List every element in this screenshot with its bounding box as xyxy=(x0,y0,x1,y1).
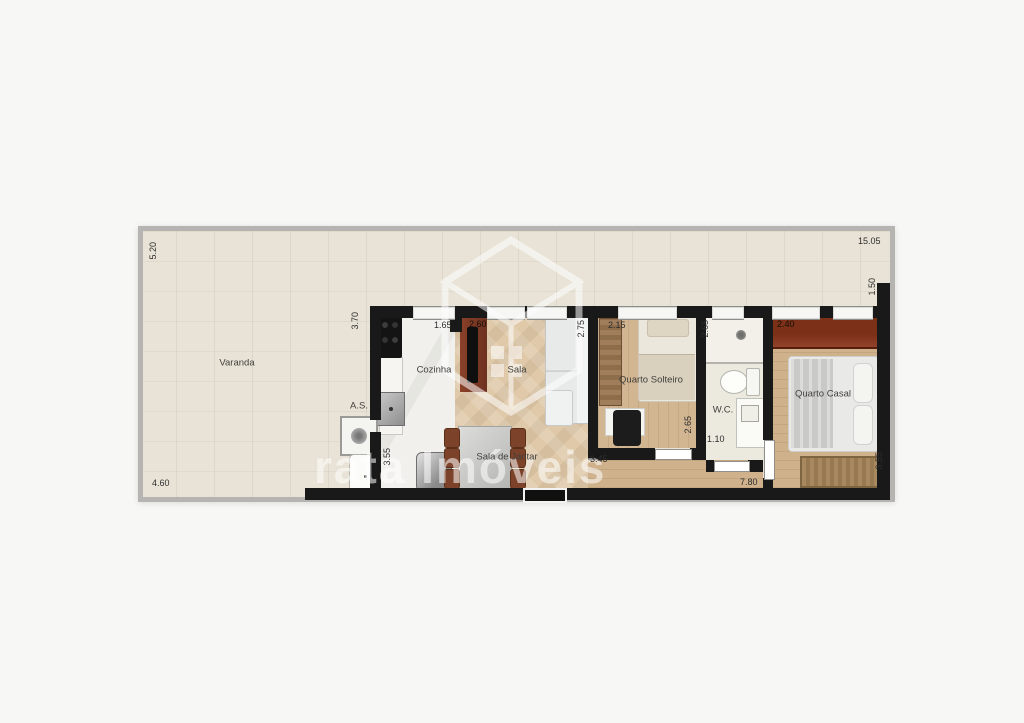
floor-plan-page: Varanda Cozinha A.S. Sala Sala de Jantar… xyxy=(0,0,1024,723)
single-bed xyxy=(638,315,698,402)
shower-head xyxy=(736,330,746,340)
bathroom-window xyxy=(712,306,744,320)
living-window-right xyxy=(527,306,567,320)
wall-bottom-interior xyxy=(305,488,890,500)
wall-couple-bedroom-left-lower xyxy=(763,478,773,500)
kitchen-window xyxy=(413,306,455,320)
wall-kitchen-left-upper xyxy=(370,306,381,420)
single-bed-pillow xyxy=(647,319,689,337)
room-label-sala-jantar: Sala de Jantar xyxy=(476,452,537,463)
dining-chair xyxy=(444,448,460,468)
room-label-sala: Sala xyxy=(507,365,526,376)
dim-wc-height: 2.65 xyxy=(700,320,710,338)
toilet xyxy=(720,370,748,394)
floor-plan: Varanda Cozinha A.S. Sala Sala de Jantar… xyxy=(138,226,895,502)
wall-kitchen-left-lower xyxy=(370,432,381,500)
dining-chair xyxy=(510,428,526,448)
room-label-varanda: Varanda xyxy=(219,358,254,369)
wall-bathroom-bottom-a xyxy=(706,460,714,472)
dim-left-section-height: 3.70 xyxy=(350,312,360,330)
dim-hall-span: 7.80 xyxy=(740,477,758,487)
couple-bedroom-door xyxy=(764,440,775,480)
dim-varanda-width: 4.60 xyxy=(152,478,170,488)
dim-varanda-height: 5.20 xyxy=(148,242,158,260)
bathroom-door xyxy=(714,461,750,472)
shower-area xyxy=(706,318,763,364)
dim-quarto-casal-height: 3.55 xyxy=(874,452,884,470)
sofa-chaise xyxy=(545,390,573,426)
room-label-quarto-casal: Quarto Casal xyxy=(795,389,851,400)
room-label-quarto-solteiro: Quarto Solteiro xyxy=(619,375,683,386)
room-label-area-servico: A.S. xyxy=(350,401,368,412)
desk-chair xyxy=(613,410,641,446)
rug xyxy=(800,456,881,488)
dim-wc-width: 1.10 xyxy=(707,434,725,444)
entrance-door xyxy=(523,488,567,503)
single-bedroom-door xyxy=(655,449,692,460)
wall-couple-bedroom-left-upper xyxy=(763,306,773,440)
toilet-tank xyxy=(746,368,760,396)
room-label-wc: W.C. xyxy=(713,405,734,416)
dining-chair xyxy=(444,428,460,448)
dining-chair xyxy=(444,469,460,489)
wardrobe-single xyxy=(599,318,622,406)
kitchen-sink xyxy=(377,392,405,426)
bathroom-vanity xyxy=(736,398,765,448)
couple-bedroom-window-right xyxy=(833,306,873,320)
dim-quarto-solteiro-width: 2.15 xyxy=(608,320,626,330)
dim-varanda-right-depth: 1.50 xyxy=(867,278,877,296)
dim-cozinha-width: 1.65 xyxy=(434,320,452,330)
living-window-left xyxy=(487,306,525,320)
double-bed-pillow xyxy=(853,363,873,403)
dim-quarto-casal-width: 2.40 xyxy=(777,319,795,329)
double-bed-throw xyxy=(791,359,833,448)
dim-cozinha-height: 3.55 xyxy=(382,448,392,466)
dim-total-width: 15.05 xyxy=(858,236,881,246)
outer-wall-left xyxy=(138,226,143,502)
dim-solteiro-wc-span: 3.45 xyxy=(590,454,608,464)
tv xyxy=(467,327,478,383)
outer-wall-right xyxy=(890,226,895,502)
dim-sala-height: 2.75 xyxy=(576,320,586,338)
double-bed-pillow xyxy=(853,405,873,445)
dim-quarto-solteiro-height: 2.65 xyxy=(683,416,693,434)
outer-wall-top xyxy=(138,226,895,231)
double-bed xyxy=(788,356,879,452)
room-label-cozinha: Cozinha xyxy=(417,365,452,376)
dining-chair xyxy=(510,469,526,489)
wall-bathroom-bottom-b xyxy=(748,460,763,472)
single-bedroom-window xyxy=(618,306,677,320)
dim-sala-width: 2.60 xyxy=(469,319,487,329)
couple-bedroom-window-left xyxy=(772,306,820,320)
wall-living-bedroom xyxy=(588,306,598,460)
stove-cooktop xyxy=(378,316,402,358)
